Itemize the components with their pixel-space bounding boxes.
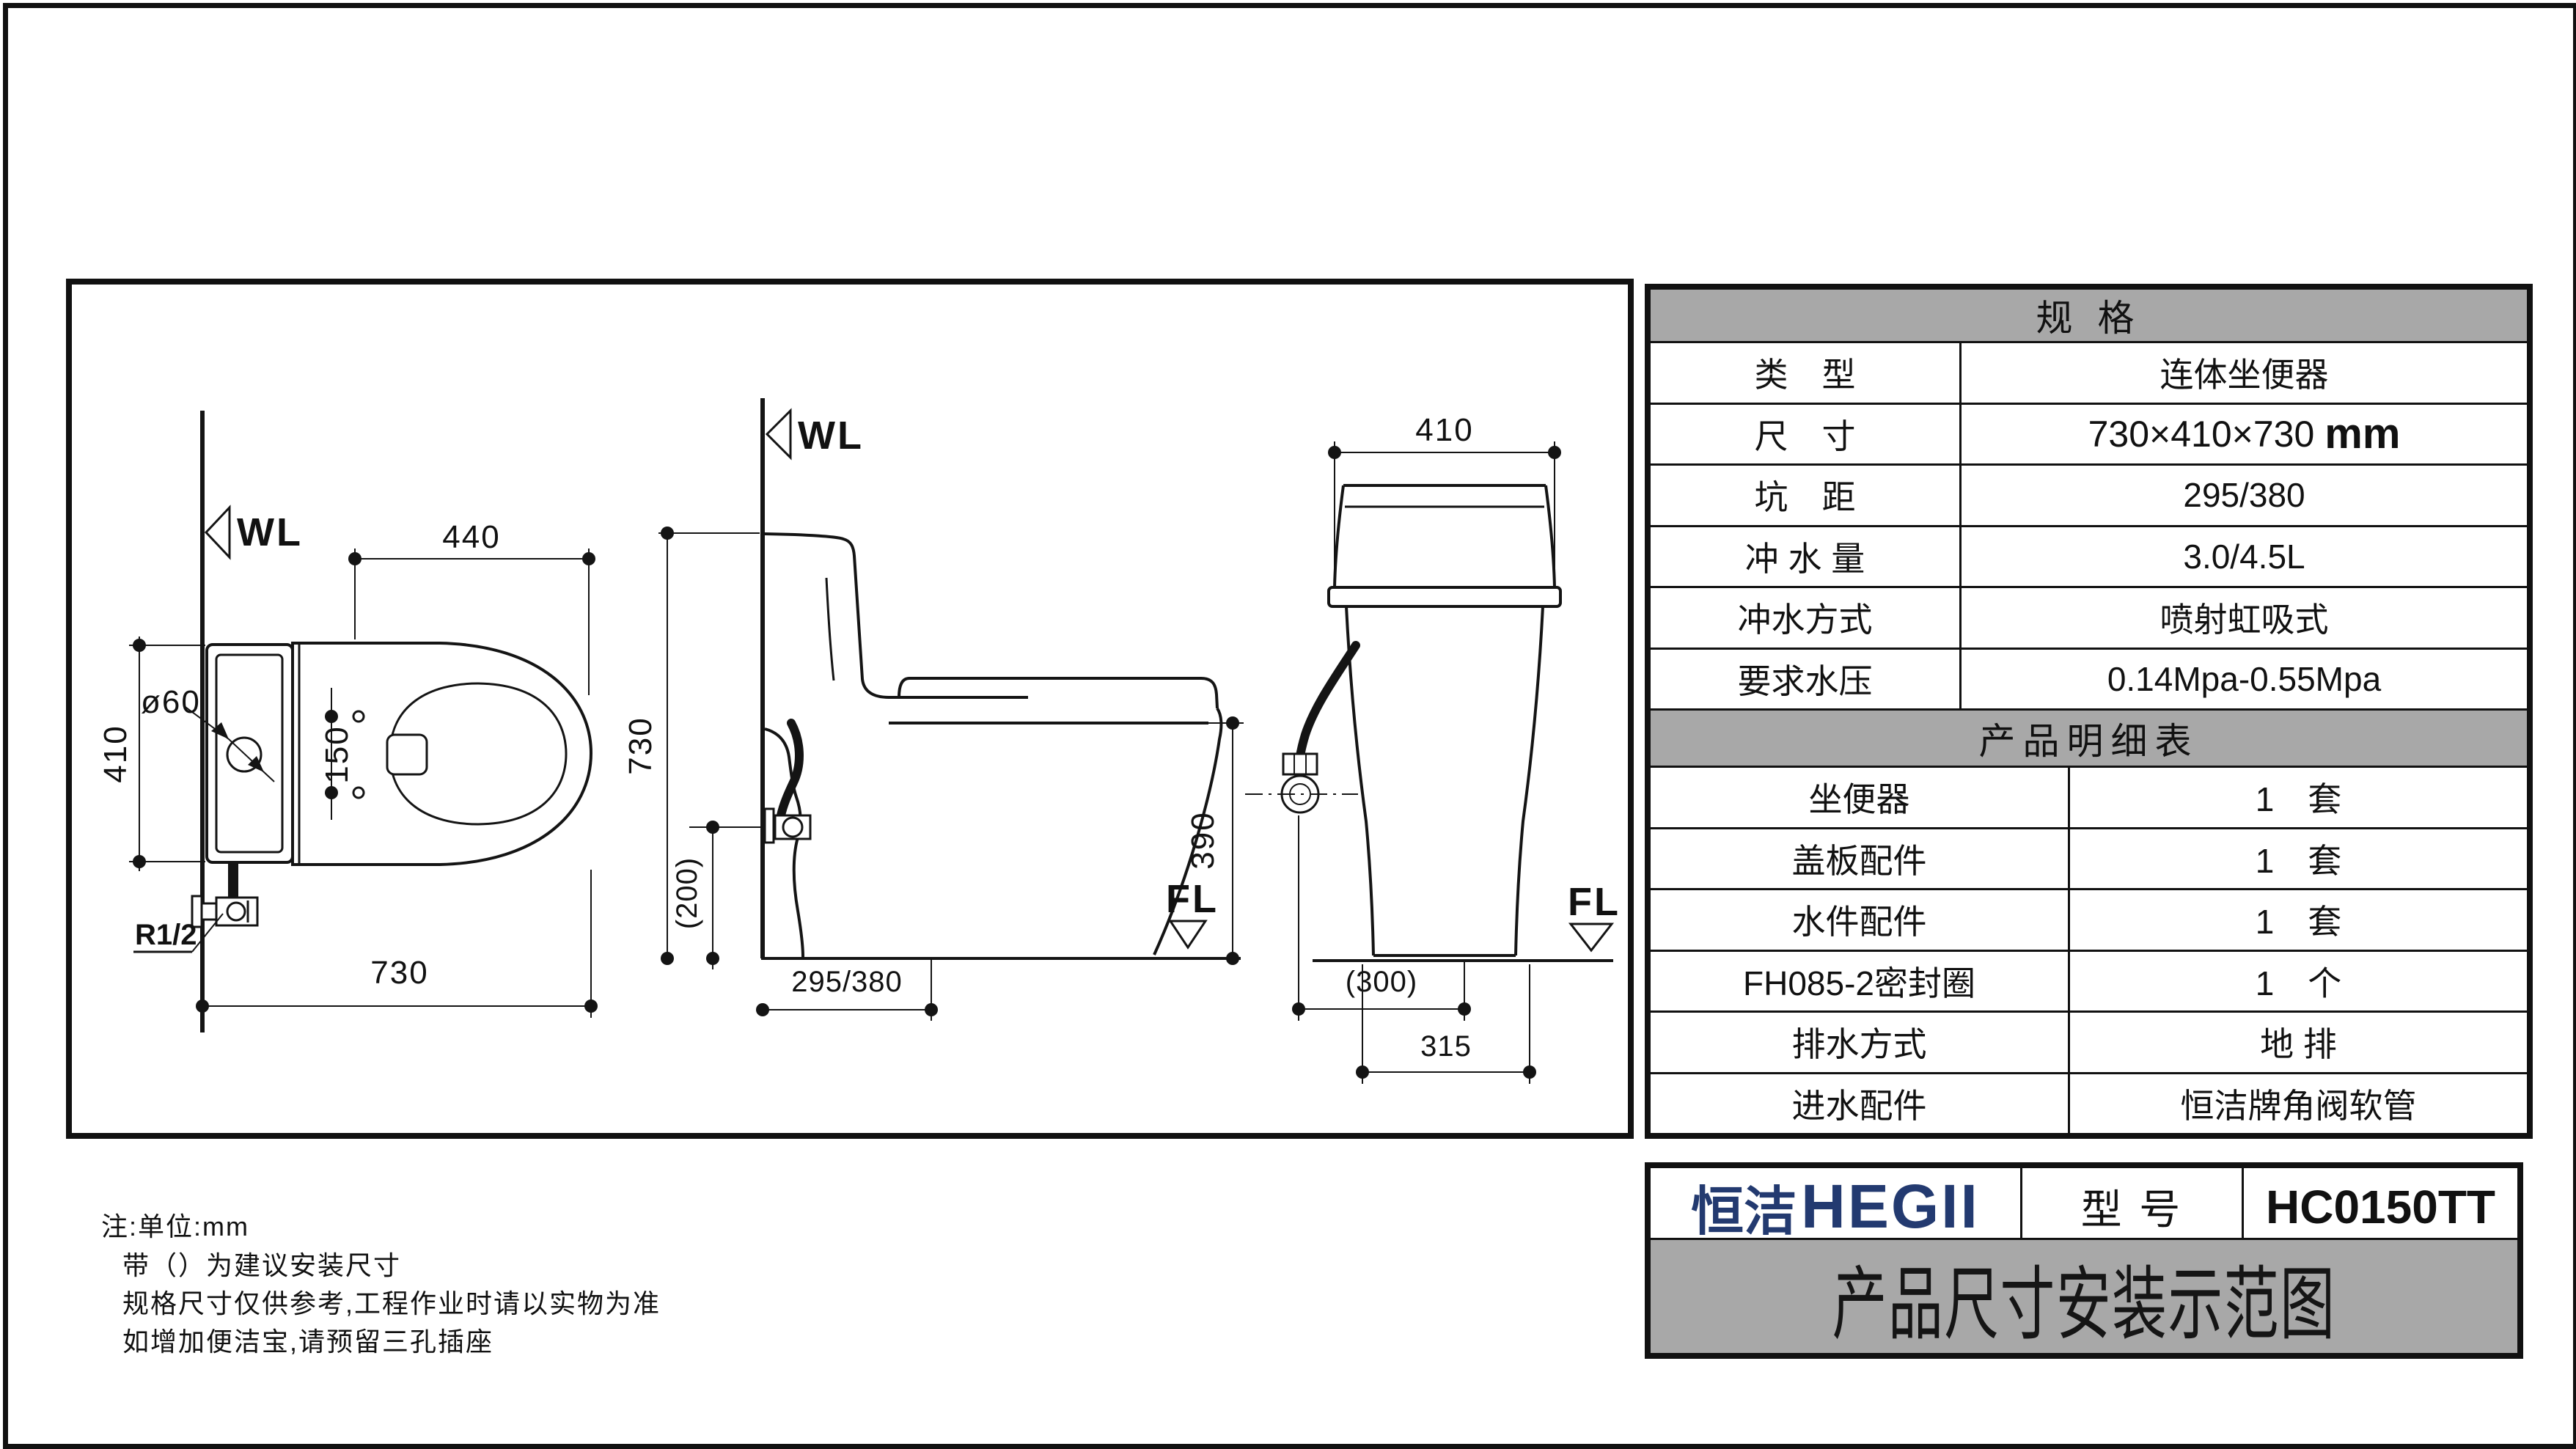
table-row: 尺 寸 730×410×730 mm xyxy=(1651,403,2527,464)
table-row: 类 型 连体坐便器 xyxy=(1651,341,2527,403)
detail-label-drain-type: 排水方式 xyxy=(1651,1013,2070,1072)
detail-table-title: 产品明细表 xyxy=(1651,708,2527,766)
spec-value-type: 连体坐便器 xyxy=(1962,343,2527,403)
drawing-panel xyxy=(66,279,1634,1139)
detail-value-toilet: 1 套 xyxy=(2070,768,2527,827)
title-block: 恒洁 HEGII 型 号 HC0150TT 产品尺寸安装示范图 xyxy=(1645,1162,2523,1359)
detail-label-seal-ring: FH085-2密封圈 xyxy=(1651,952,2070,1011)
note-line-1: 注:单位:mm xyxy=(101,1206,249,1244)
doc-title: 产品尺寸安装示范图 xyxy=(1832,1239,2336,1353)
model-number: HC0150TT xyxy=(2244,1168,2517,1245)
table-row: 排水方式 地 排 xyxy=(1651,1010,2527,1072)
table-row: 坑 距 295/380 xyxy=(1651,463,2527,525)
table-row: 冲 水 量 3.0/4.5L xyxy=(1651,525,2527,587)
spec-label-type: 类 型 xyxy=(1651,343,1962,403)
spec-value-size: 730×410×730 mm xyxy=(1962,405,2527,464)
spec-size-number: 730×410×730 xyxy=(2088,413,2315,455)
spec-value-roughin: 295/380 xyxy=(1962,466,2527,525)
table-row: 进水配件 恒洁牌角阀软管 xyxy=(1651,1072,2527,1134)
title-block-top-row: 恒洁 HEGII 型 号 HC0150TT xyxy=(1651,1168,2517,1238)
spec-value-flush-volume: 3.0/4.5L xyxy=(1962,527,2527,587)
table-row: 水件配件 1 套 xyxy=(1651,888,2527,950)
spec-table: 规 格 类 型 连体坐便器 尺 寸 730×410×730 mm 坑 距 295… xyxy=(1645,284,2533,1139)
spec-label-roughin: 坑 距 xyxy=(1651,466,1962,525)
detail-value-drain-type: 地 排 xyxy=(2070,1013,2527,1072)
doc-title-band: 产品尺寸安装示范图 xyxy=(1651,1238,2517,1353)
brand-logo-latin: HEGII xyxy=(1801,1171,1980,1242)
detail-value-fittings: 1 套 xyxy=(2070,890,2527,950)
model-label: 型 号 xyxy=(2022,1168,2244,1245)
table-row: 要求水压 0.14Mpa-0.55Mpa xyxy=(1651,648,2527,709)
table-row: 冲水方式 喷射虹吸式 xyxy=(1651,586,2527,648)
detail-label-toilet: 坐便器 xyxy=(1651,768,2070,827)
spec-label-flush-type: 冲水方式 xyxy=(1651,588,1962,648)
brand-logo-chinese: 恒洁 xyxy=(1691,1168,1797,1245)
note-line-4: 如增加便洁宝,请预留三孔插座 xyxy=(122,1321,493,1359)
detail-value-cover: 1 套 xyxy=(2070,829,2527,889)
detail-value-inlet-fitting: 恒洁牌角阀软管 xyxy=(2070,1074,2527,1134)
table-row: 盖板配件 1 套 xyxy=(1651,827,2527,889)
detail-label-inlet-fitting: 进水配件 xyxy=(1651,1074,2070,1134)
note-line-3: 规格尺寸仅供参考,工程作业时请以实物为准 xyxy=(122,1283,661,1321)
note-line-2: 带（）为建议安装尺寸 xyxy=(122,1244,401,1283)
spec-table-title: 规 格 xyxy=(1651,290,2527,341)
detail-value-seal-ring: 1 个 xyxy=(2070,952,2527,1011)
brand-logo: 恒洁 HEGII xyxy=(1651,1168,2022,1245)
spec-value-flush-type: 喷射虹吸式 xyxy=(1962,588,2527,648)
spec-label-flush-volume: 冲 水 量 xyxy=(1651,527,1962,587)
detail-label-fittings: 水件配件 xyxy=(1651,890,2070,950)
table-row: FH085-2密封圈 1 个 xyxy=(1651,950,2527,1011)
table-row: 坐便器 1 套 xyxy=(1651,766,2527,827)
spec-label-pressure: 要求水压 xyxy=(1651,650,1962,709)
spec-size-unit: mm xyxy=(2324,409,2400,458)
detail-label-cover: 盖板配件 xyxy=(1651,829,2070,889)
spec-value-pressure: 0.14Mpa-0.55Mpa xyxy=(1962,650,2527,709)
spec-label-size: 尺 寸 xyxy=(1651,405,1962,464)
